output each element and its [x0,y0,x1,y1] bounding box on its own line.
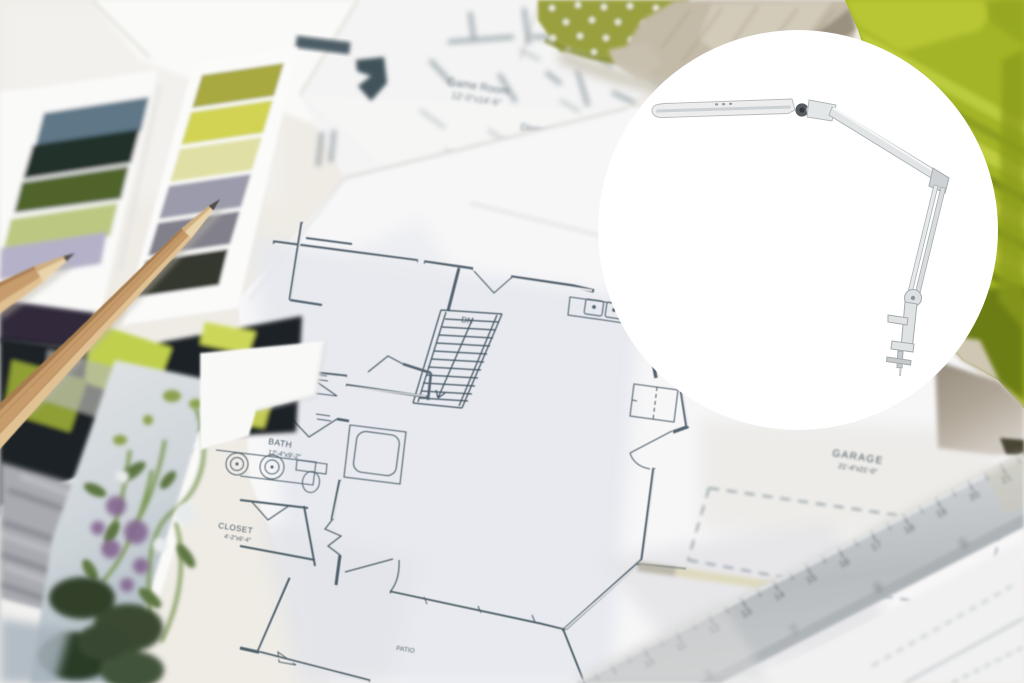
svg-text:DN: DN [461,315,474,326]
